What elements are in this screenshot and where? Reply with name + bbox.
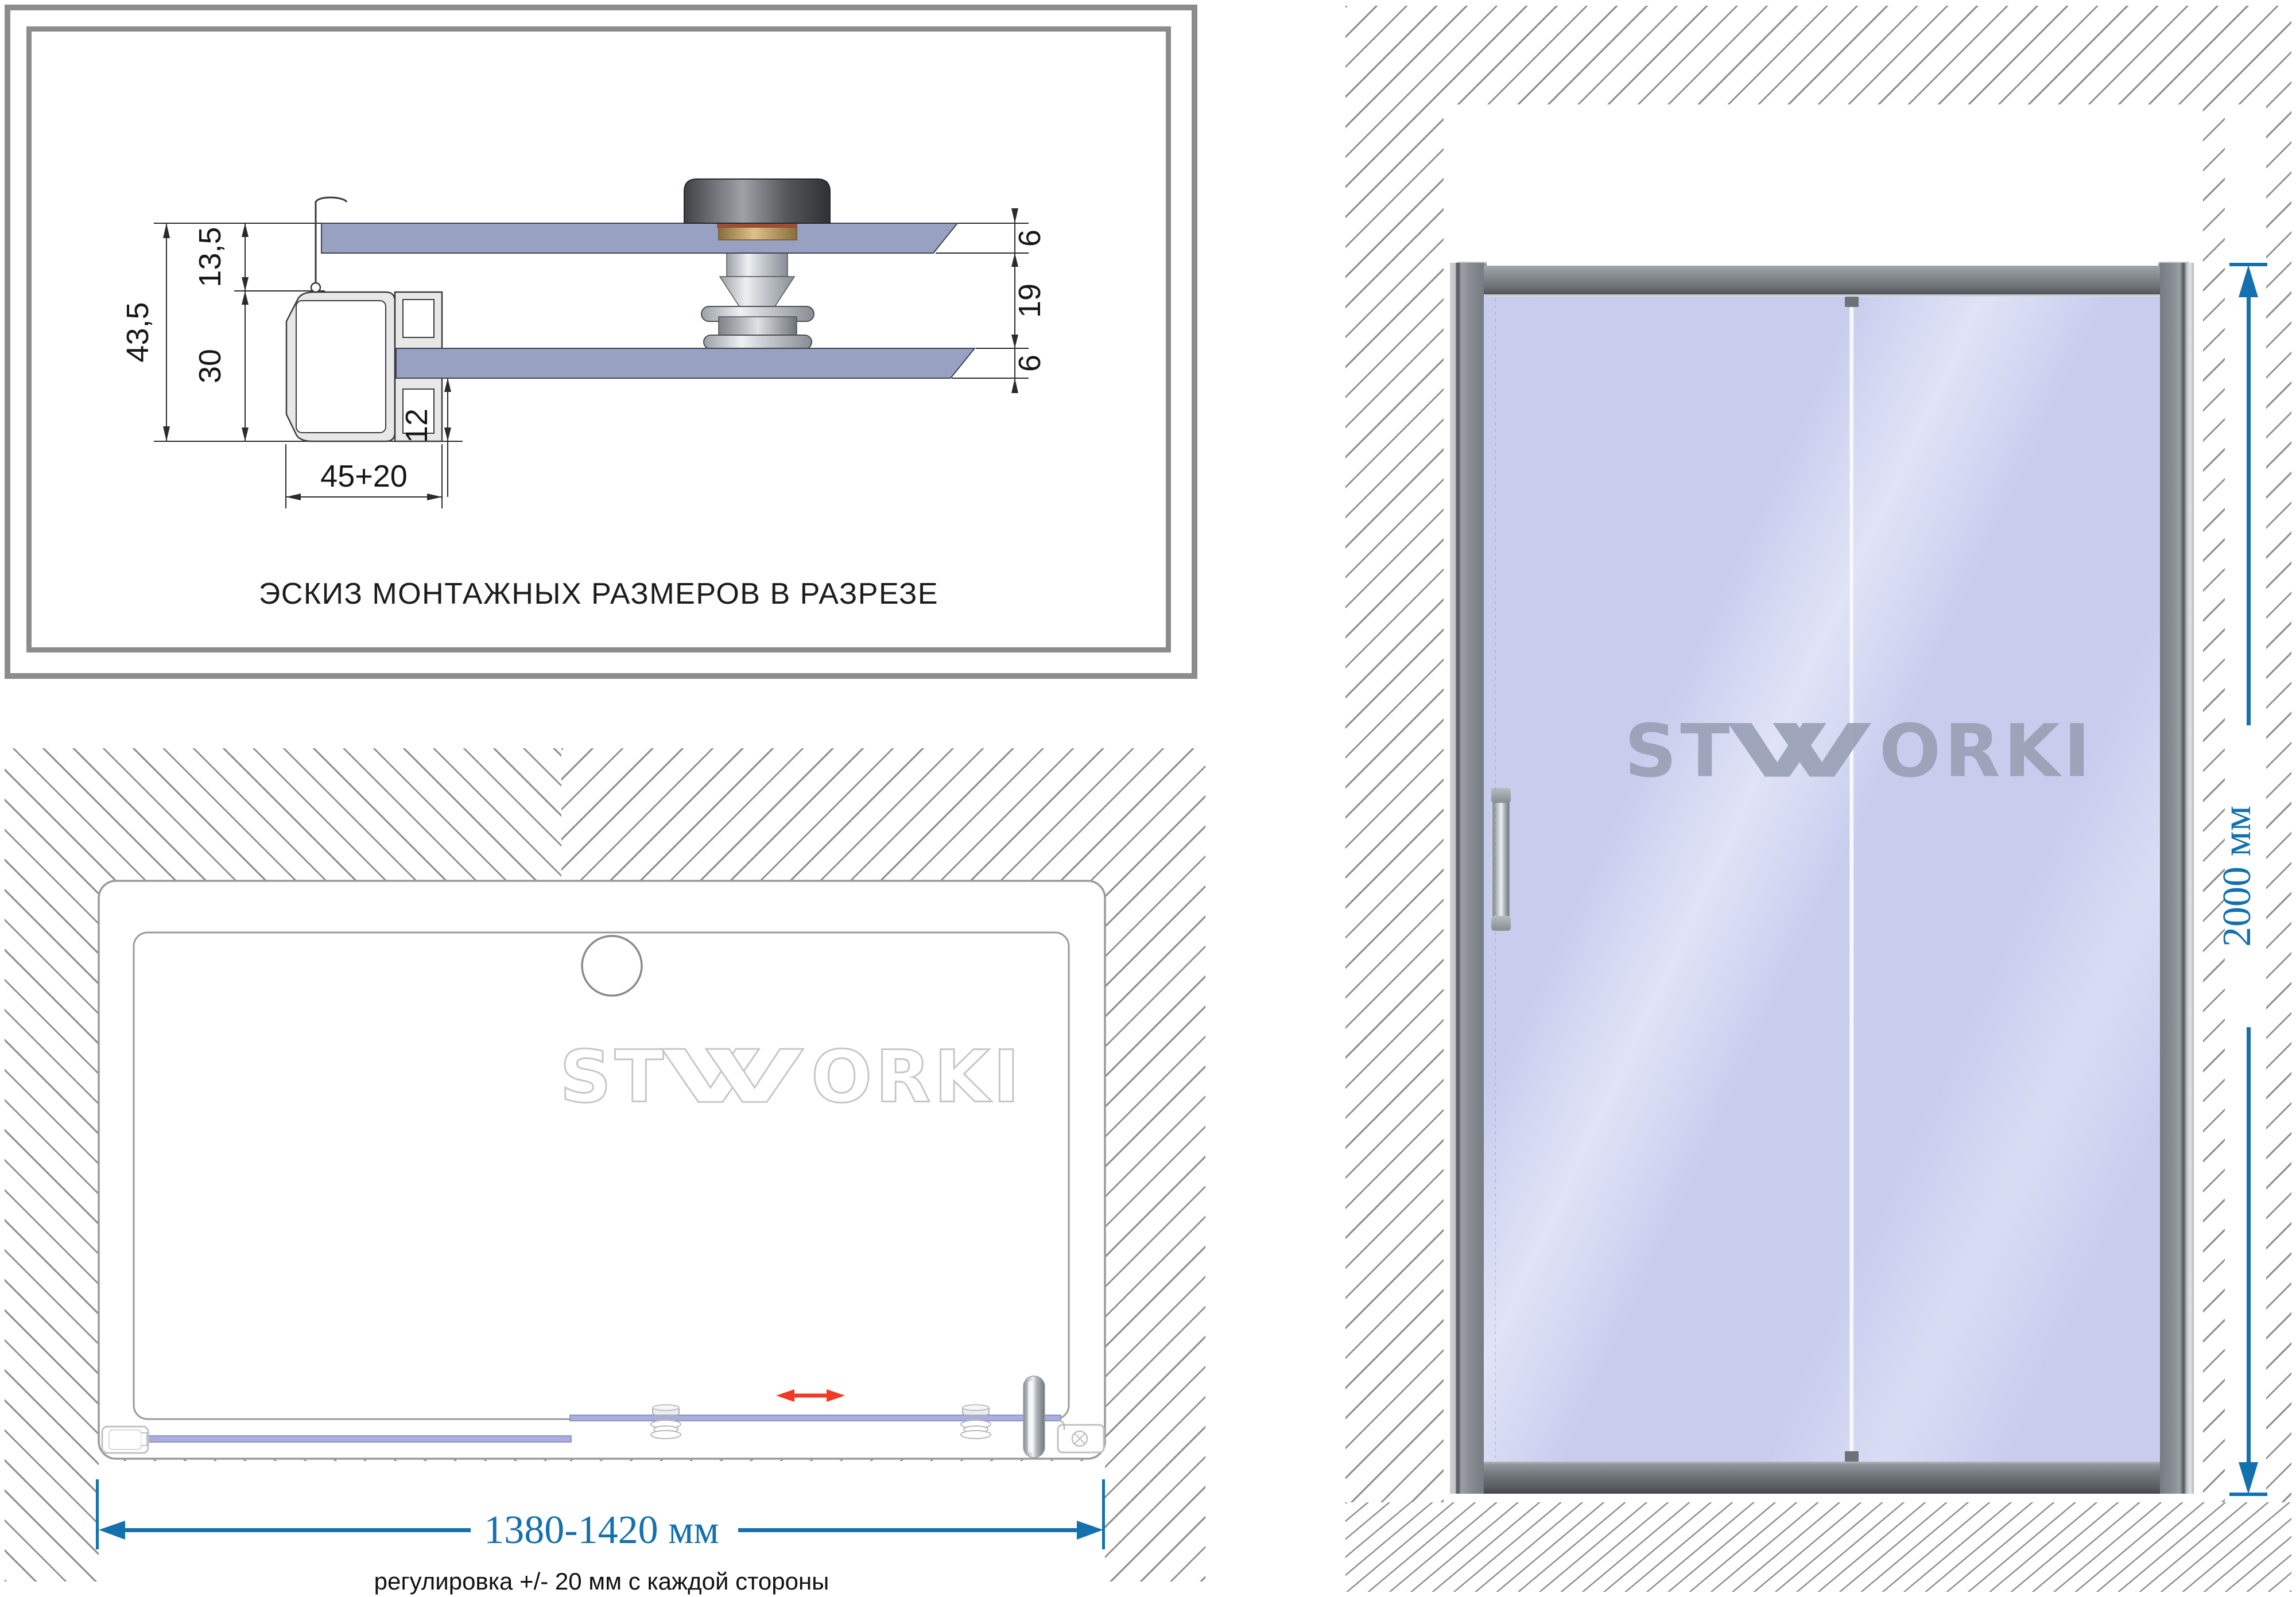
shower-tray-outline (134, 932, 1069, 1419)
door-handle-plan (1023, 1376, 1045, 1458)
wall-profile-inner (296, 301, 386, 433)
wall-bracket-right (1058, 1421, 1104, 1452)
roller-cap (684, 179, 830, 223)
brand-watermark-door (1624, 709, 2094, 794)
height-dimension-label: 2000 мм (2215, 806, 2259, 947)
dim-roller-gap: 19 (1013, 283, 1047, 318)
sliding-glass-plan (570, 1415, 1061, 1421)
glass-section-top (321, 223, 957, 253)
dim-profile-height: 30 (193, 349, 227, 383)
wall-bracket-left (102, 1427, 148, 1453)
glass-section-bottom (396, 348, 975, 378)
roller-wheel-flange-bottom (704, 335, 812, 349)
roller-stem (727, 253, 788, 277)
roller-plan (651, 1405, 681, 1439)
dim-glass-top: 6 (1013, 230, 1047, 247)
dim-bottom-inset: 12 (400, 409, 434, 443)
hanger-clip-ball (311, 283, 320, 292)
fixed-glass-plan (142, 1436, 571, 1442)
cross-section-caption: ЭСКИЗ МОНТАЖНЫХ РАЗМЕРОВ В РАЗРЕЗЕ (0, 577, 1197, 611)
dim-total-height: 43,5 (121, 302, 155, 362)
dim-top-offset: 13,5 (193, 227, 227, 287)
dim-profile-width: 45+20 (320, 459, 408, 494)
page: ST ORKI (0, 0, 2296, 1597)
plan-view-drawing: 1380-1420 мм регулировка +/- 20 мм с каж… (0, 740, 1197, 1597)
roller-brass-bushing (719, 227, 797, 240)
roller-cone (720, 277, 794, 306)
dim-glass-bottom: 6 (1013, 355, 1047, 372)
front-view-overlay: 2000 мм (1337, 0, 2296, 1597)
width-dimension-label: 1380-1420 мм (484, 1508, 719, 1552)
divider-guide-top (1845, 297, 1859, 307)
drain-circle (582, 936, 642, 996)
clip-channel-top (403, 300, 434, 337)
adjustment-note: регулировка +/- 20 мм с каждой стороны (374, 1568, 829, 1595)
divider-guide-bottom (1845, 1451, 1859, 1462)
roller-plan (961, 1405, 991, 1439)
